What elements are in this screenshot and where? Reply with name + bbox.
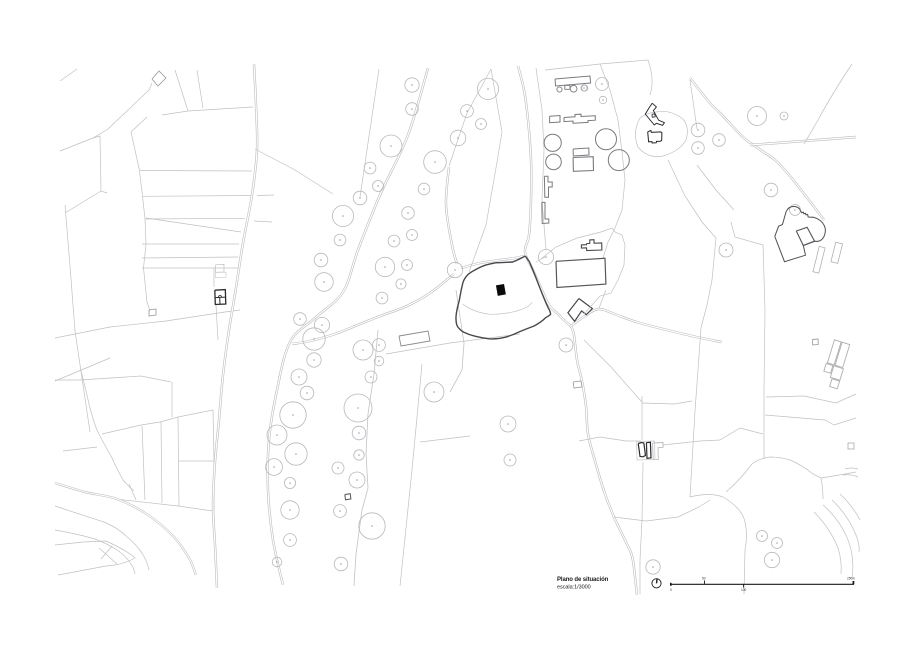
svg-text:100: 100: [741, 588, 747, 592]
svg-text:escala:1/3000: escala:1/3000: [557, 585, 591, 591]
svg-text:50: 50: [702, 577, 706, 581]
svg-text:Plano de situación: Plano de situación: [557, 577, 609, 583]
svg-text:250m: 250m: [847, 577, 855, 581]
svg-text:0: 0: [670, 588, 672, 592]
